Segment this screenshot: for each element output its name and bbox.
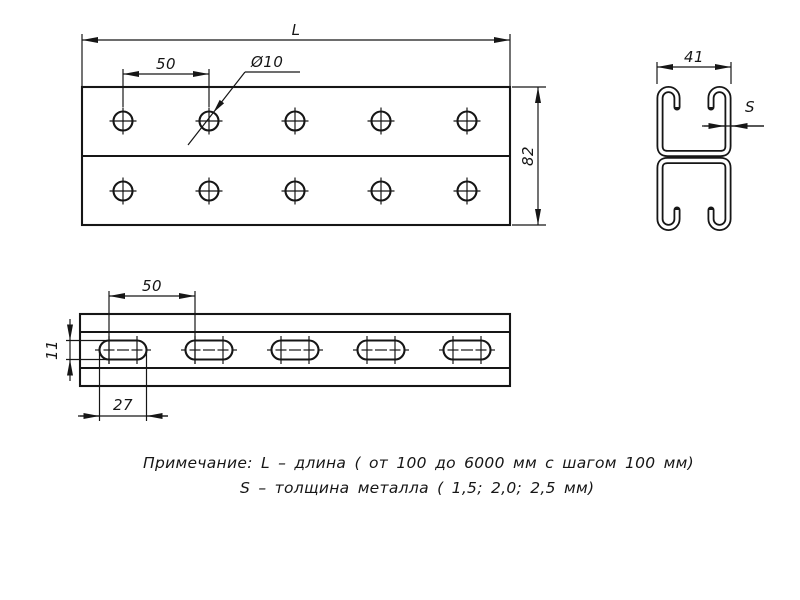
hole bbox=[282, 108, 309, 135]
note-line-2: S – толщина металла ( 1,5; 2,0; 2,5 мм) bbox=[240, 479, 594, 497]
dim-length: L bbox=[82, 21, 510, 86]
hole bbox=[454, 178, 481, 205]
note-line-1: Примечание: L – длина ( от 100 до 6000 м… bbox=[143, 454, 694, 472]
front-view: 50 11 27 bbox=[43, 277, 510, 421]
hole bbox=[282, 178, 309, 205]
dim-label-profile-width: 41 bbox=[684, 48, 704, 66]
dim-hole-diameter: Ø10 bbox=[188, 53, 300, 145]
hole bbox=[368, 108, 395, 135]
dim-label-slot-spacing: 50 bbox=[142, 277, 162, 295]
dim-label-length: L bbox=[292, 21, 301, 39]
profile-outline bbox=[660, 90, 728, 228]
hole bbox=[454, 108, 481, 135]
dim-label-slot-length: 27 bbox=[113, 396, 133, 414]
slot bbox=[267, 336, 323, 364]
dim-label-hole-diameter: Ø10 bbox=[250, 53, 283, 71]
slot bbox=[439, 336, 495, 364]
slot bbox=[181, 336, 237, 364]
dim-plate-height: 82 bbox=[512, 87, 546, 225]
dim-slot-height: 11 bbox=[43, 319, 114, 381]
hole bbox=[110, 178, 137, 205]
dim-slot-spacing: 50 bbox=[109, 277, 195, 364]
note: Примечание: L – длина ( от 100 до 6000 м… bbox=[143, 454, 694, 497]
top-view: L 50 Ø10 82 bbox=[82, 21, 546, 225]
hole bbox=[110, 108, 137, 135]
dim-label-plate-height: 82 bbox=[519, 146, 537, 166]
slot bbox=[353, 336, 409, 364]
hole bbox=[368, 178, 395, 205]
dim-label-hole-spacing: 50 bbox=[156, 55, 176, 73]
section-view: 41 S bbox=[657, 48, 764, 228]
dim-hole-spacing: 50 bbox=[123, 55, 209, 107]
drawing-sheet: L 50 Ø10 82 bbox=[0, 0, 800, 600]
technical-drawing: L 50 Ø10 82 bbox=[0, 0, 800, 600]
dim-label-thickness: S bbox=[745, 98, 755, 116]
hole bbox=[196, 178, 223, 205]
dim-profile-width: 41 bbox=[657, 48, 731, 84]
dim-label-slot-height: 11 bbox=[43, 340, 61, 360]
